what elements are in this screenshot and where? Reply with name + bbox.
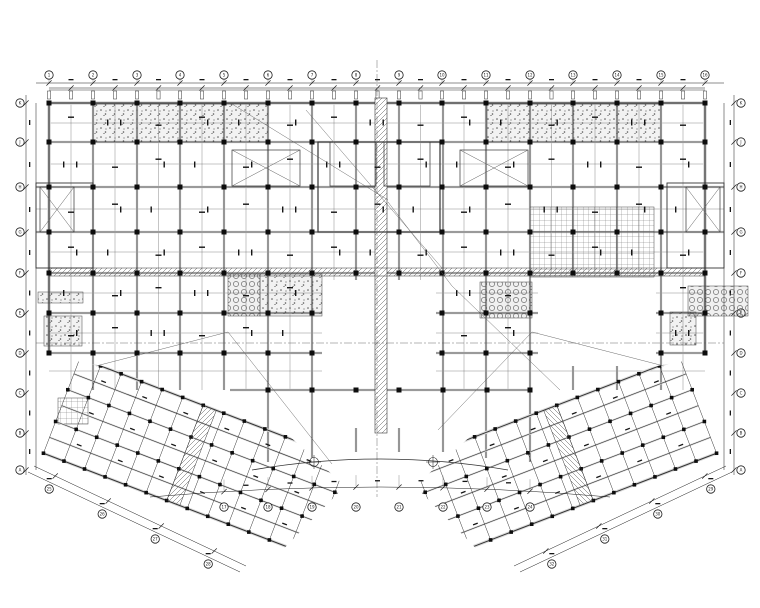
axis-bubble: 28: [204, 560, 212, 568]
axis-bubble: A: [16, 466, 24, 474]
svg-text:J: J: [739, 139, 741, 144]
axis-bubble: 1: [45, 71, 53, 79]
axis-bubble: B: [737, 429, 745, 437]
svg-text:3: 3: [136, 72, 139, 77]
svg-text:G: G: [739, 229, 742, 234]
svg-text:32: 32: [549, 561, 555, 566]
svg-text:K: K: [19, 100, 22, 105]
axis-bubble: 15: [657, 71, 665, 79]
axis-bubble: G: [737, 228, 745, 236]
axis-bubble: 11: [482, 71, 490, 79]
axis-bubble: 23: [483, 503, 491, 511]
svg-text:10: 10: [439, 72, 445, 77]
svg-text:5: 5: [223, 72, 226, 77]
axis-bubble: 21: [395, 503, 403, 511]
axis-bubble: 2: [89, 71, 97, 79]
axis-bubble: 6: [264, 71, 272, 79]
axis-bubble: C: [737, 389, 745, 397]
axis-bubble: D: [16, 349, 24, 357]
cad-drawing-stage: 12345678910111213141516KJHGFEDCBAKJHGFED…: [0, 0, 760, 608]
axis-bubble: 18: [264, 503, 272, 511]
svg-text:11: 11: [483, 72, 489, 77]
svg-text:4: 4: [179, 72, 182, 77]
axis-bubble: 27: [151, 535, 159, 543]
axis-bubble: 19: [308, 503, 316, 511]
svg-text:2: 2: [92, 72, 95, 77]
structural-floor-plan: 12345678910111213141516KJHGFEDCBAKJHGFED…: [0, 0, 760, 608]
svg-text:29: 29: [708, 486, 714, 491]
svg-text:8: 8: [355, 72, 358, 77]
axis-bubble: G: [16, 228, 24, 236]
svg-text:C: C: [740, 390, 743, 395]
svg-text:15: 15: [658, 72, 664, 77]
svg-text:28: 28: [206, 561, 212, 566]
axis-bubble: A: [737, 466, 745, 474]
svg-text:A: A: [19, 467, 22, 472]
axis-bubble: 16: [701, 71, 709, 79]
svg-text:1: 1: [48, 72, 51, 77]
svg-text:20: 20: [353, 504, 359, 509]
axis-bubble: F: [737, 269, 745, 277]
axis-bubble: K: [16, 99, 24, 107]
svg-text:18: 18: [265, 504, 271, 509]
svg-text:H: H: [18, 184, 21, 189]
axis-bubble: 20: [352, 503, 360, 511]
svg-text:14: 14: [614, 72, 620, 77]
axis-bubble: F: [16, 269, 24, 277]
axis-bubble: 10: [438, 71, 446, 79]
svg-text:H: H: [739, 184, 742, 189]
svg-text:9: 9: [398, 72, 401, 77]
svg-text:7: 7: [311, 72, 314, 77]
svg-text:24: 24: [527, 504, 533, 509]
axis-bubble: 29: [707, 485, 715, 493]
axis-bubble: B: [16, 429, 24, 437]
axis-bubble: K: [737, 99, 745, 107]
svg-text:A: A: [740, 467, 743, 472]
axis-bubble: 7: [308, 71, 316, 79]
axis-bubble: 8: [352, 71, 360, 79]
svg-text:12: 12: [527, 72, 533, 77]
axis-bubble: 25: [45, 485, 53, 493]
axis-bubble: 22: [439, 503, 447, 511]
svg-text:13: 13: [570, 72, 576, 77]
svg-text:K: K: [740, 100, 743, 105]
svg-text:17: 17: [221, 504, 227, 509]
svg-text:C: C: [19, 390, 22, 395]
axis-bubble: 13: [569, 71, 577, 79]
svg-text:16: 16: [702, 72, 708, 77]
axis-bubble: 3: [133, 71, 141, 79]
axis-bubble: 17: [220, 503, 228, 511]
axis-bubble: H: [16, 183, 24, 191]
axis-bubble: J: [737, 138, 745, 146]
svg-text:D: D: [739, 350, 742, 355]
axis-bubble: 30: [654, 510, 662, 518]
svg-text:27: 27: [153, 536, 159, 541]
svg-text:J: J: [18, 139, 20, 144]
svg-text:G: G: [18, 229, 21, 234]
svg-text:30: 30: [655, 511, 661, 516]
axis-bubble: H: [737, 183, 745, 191]
axis-bubble: 24: [526, 503, 534, 511]
svg-text:26: 26: [100, 511, 106, 516]
svg-text:25: 25: [47, 486, 53, 491]
svg-text:22: 22: [440, 504, 446, 509]
axis-bubble: 26: [98, 510, 106, 518]
svg-text:B: B: [740, 430, 743, 435]
axis-bubble: D: [737, 349, 745, 357]
svg-text:23: 23: [484, 504, 490, 509]
svg-text:21: 21: [396, 504, 402, 509]
axis-bubble: C: [16, 389, 24, 397]
axis-bubble: E: [16, 309, 24, 317]
axis-bubble: 12: [526, 71, 534, 79]
axis-bubble: 32: [548, 560, 556, 568]
svg-text:D: D: [18, 350, 21, 355]
axis-bubble: 5: [220, 71, 228, 79]
svg-text:19: 19: [309, 504, 315, 509]
svg-text:31: 31: [602, 536, 608, 541]
axis-bubble: 31: [601, 535, 609, 543]
axis-bubble: 14: [613, 71, 621, 79]
axis-bubble: 4: [176, 71, 184, 79]
axis-bubble: 9: [395, 71, 403, 79]
svg-text:B: B: [19, 430, 22, 435]
axis-bubble: J: [16, 138, 24, 146]
svg-text:6: 6: [267, 72, 270, 77]
